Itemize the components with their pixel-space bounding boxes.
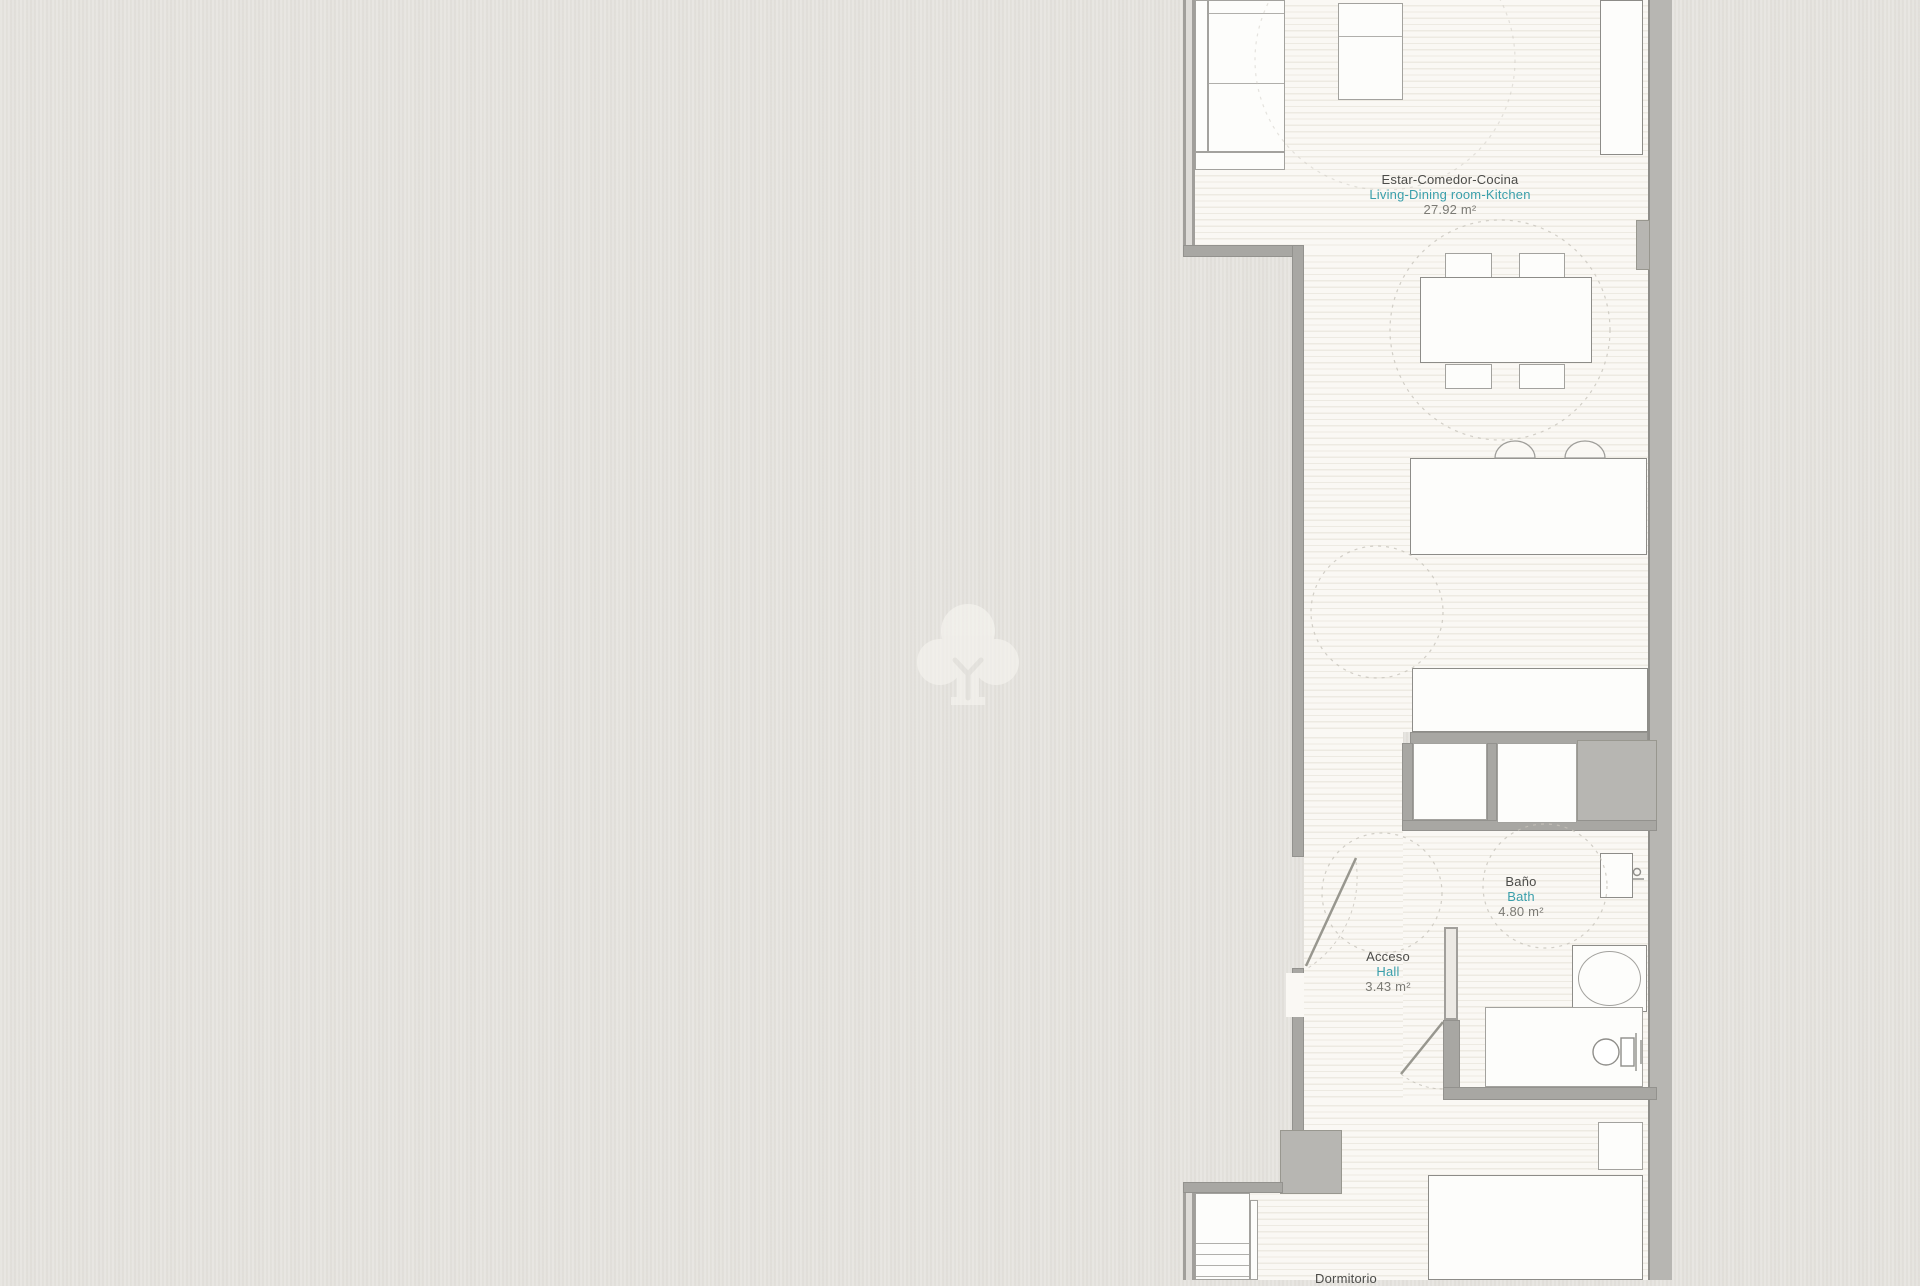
floor-hall (1304, 732, 1403, 1100)
wardrobe-shelves (1196, 1233, 1249, 1279)
closet (1413, 743, 1487, 820)
room-name-en: Hall (1365, 964, 1410, 979)
washbasin (1600, 853, 1633, 898)
bathroom-vanity (1485, 1007, 1643, 1087)
dining-chair (1519, 253, 1565, 278)
kitchen-counter (1412, 668, 1648, 732)
room-label-living: Estar-Comedor-Cocina Living-Dining room-… (1369, 172, 1530, 217)
coffee-table (1338, 3, 1403, 100)
wall-segment (1183, 0, 1195, 257)
floor-plan-page: { "watermark": {"icon": "tree-logo"}, "r… (0, 0, 1920, 1280)
bed (1428, 1175, 1643, 1280)
room-area: 4.80 m² (1498, 904, 1543, 919)
room-name-es: Dormitorio (1315, 1271, 1377, 1286)
dining-table (1420, 277, 1592, 363)
dining-chair (1445, 253, 1492, 278)
room-name-es: Baño (1498, 874, 1543, 889)
wall-segment (1292, 245, 1304, 857)
room-area: 3.43 m² (1365, 979, 1410, 994)
wall-segment (1402, 743, 1413, 823)
wardrobe (1195, 1193, 1250, 1280)
room-name-en: Living-Dining room-Kitchen (1369, 187, 1530, 202)
room-name-en: Bath (1498, 889, 1543, 904)
tree-watermark-icon (917, 604, 1019, 705)
wardrobe-door (1250, 1200, 1258, 1280)
kitchen-island (1410, 458, 1647, 555)
sofa-armrest (1195, 152, 1285, 170)
sofa-back (1195, 0, 1208, 152)
bathtub (1572, 945, 1647, 1012)
room-label-hall: Acceso Hall 3.43 m² (1365, 949, 1410, 994)
room-area: 27.92 m² (1369, 202, 1530, 217)
room-label-bedroom: Dormitorio (1315, 1271, 1377, 1286)
bedside-table (1598, 1122, 1643, 1170)
wall-segment (1183, 245, 1304, 257)
closet (1497, 743, 1577, 823)
room-label-bath: Baño Bath 4.80 m² (1498, 874, 1543, 919)
room-name-es: Estar-Comedor-Cocina (1369, 172, 1530, 187)
wall-segment (1636, 220, 1650, 270)
wall-segment (1487, 743, 1497, 823)
wall-segment (1183, 1182, 1283, 1193)
wall-segment (1443, 1087, 1657, 1100)
sofa (1208, 0, 1285, 152)
entrance-threshold (1286, 973, 1304, 1017)
room-name-es: Acceso (1365, 949, 1410, 964)
wall-segment (1183, 1193, 1195, 1280)
dining-chair (1445, 364, 1492, 389)
wall-segment (1280, 1130, 1342, 1194)
dining-chair (1519, 364, 1565, 389)
utility-shaft (1577, 740, 1657, 824)
floor-bedroom-upper (1304, 1100, 1648, 1182)
tv-sideboard (1600, 0, 1643, 155)
bathroom-pocket-door (1444, 927, 1458, 1020)
